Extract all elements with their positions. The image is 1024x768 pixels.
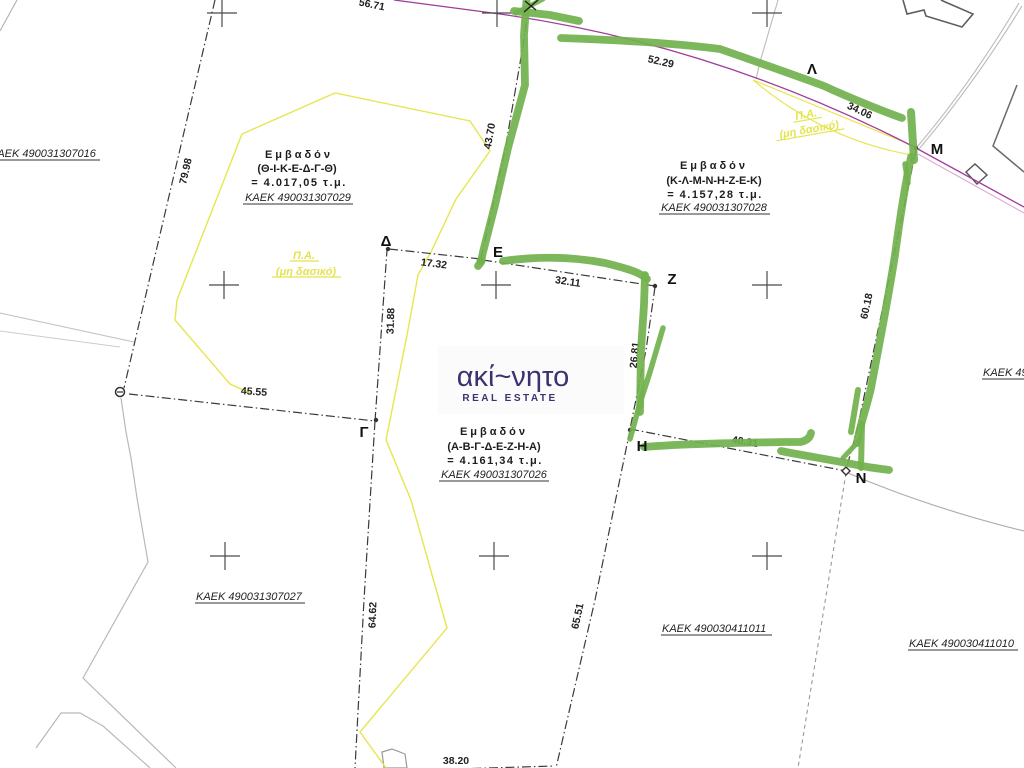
- svg-text:ΚΑΕΚ 490030411011: ΚΑΕΚ 490030411011: [662, 623, 766, 635]
- svg-text:ΚΑΕΚ 490031307028: ΚΑΕΚ 490031307028: [661, 202, 768, 214]
- svg-text:31.88: 31.88: [385, 308, 398, 335]
- svg-text:Λ: Λ: [807, 61, 817, 78]
- svg-text:Η: Η: [637, 438, 648, 455]
- svg-text:Μ: Μ: [931, 141, 944, 158]
- svg-text:64.62: 64.62: [367, 602, 380, 629]
- svg-text:= 4.157,28 τ.μ.: = 4.157,28 τ.μ.: [667, 189, 763, 201]
- svg-text:ΚΑΕΚ 490031307027: ΚΑΕΚ 490031307027: [196, 591, 303, 603]
- svg-text:ΚΑΕΚ 490031307026: ΚΑΕΚ 490031307026: [441, 469, 548, 481]
- svg-text:(μη δασικό): (μη δασικό): [276, 266, 336, 278]
- svg-text:Ε: Ε: [493, 244, 503, 261]
- svg-text:(Α-Β-Γ-Δ-Ε-Ζ-Η-Α): (Α-Β-Γ-Δ-Ε-Ζ-Η-Α): [447, 441, 541, 453]
- svg-text:REAL ESTATE: REAL ESTATE: [462, 393, 557, 404]
- svg-text:ακί~νητο: ακί~νητο: [457, 361, 569, 393]
- svg-text:= 4.017,05 τ.μ.: = 4.017,05 τ.μ.: [251, 177, 347, 189]
- svg-text:ΚΑΕΚ 490030411010: ΚΑΕΚ 490030411010: [909, 638, 1015, 650]
- svg-text:(Θ-Ι-Κ-Ε-Δ-Γ-Θ): (Θ-Ι-Κ-Ε-Δ-Γ-Θ): [257, 163, 337, 175]
- svg-text:Ν: Ν: [856, 470, 867, 487]
- svg-text:Εμβαδόν: Εμβαδόν: [265, 149, 333, 161]
- svg-text:Εμβαδόν: Εμβαδόν: [460, 426, 528, 438]
- svg-text:Δ: Δ: [381, 233, 392, 250]
- svg-text:45.55: 45.55: [240, 385, 267, 399]
- svg-text:ΚΑΕΚ 490031307016: ΚΑΕΚ 490031307016: [0, 148, 97, 160]
- svg-text:= 4.161,34 τ.μ.: = 4.161,34 τ.μ.: [447, 455, 543, 467]
- svg-text:38.20: 38.20: [443, 755, 469, 767]
- svg-text:Π.Α.: Π.Α.: [293, 250, 315, 262]
- svg-text:Εμβαδόν: Εμβαδόν: [680, 160, 748, 172]
- svg-text:ΚΑΕΚ 490031307029: ΚΑΕΚ 490031307029: [245, 192, 351, 204]
- svg-text:Γ: Γ: [359, 424, 368, 441]
- svg-text:ΚΑΕΚ 49: ΚΑΕΚ 49: [983, 367, 1024, 379]
- svg-text:Ζ: Ζ: [667, 271, 676, 288]
- svg-text:(Κ-Λ-Μ-Ν-Η-Ζ-Ε-Κ): (Κ-Λ-Μ-Ν-Η-Ζ-Ε-Κ): [666, 175, 762, 187]
